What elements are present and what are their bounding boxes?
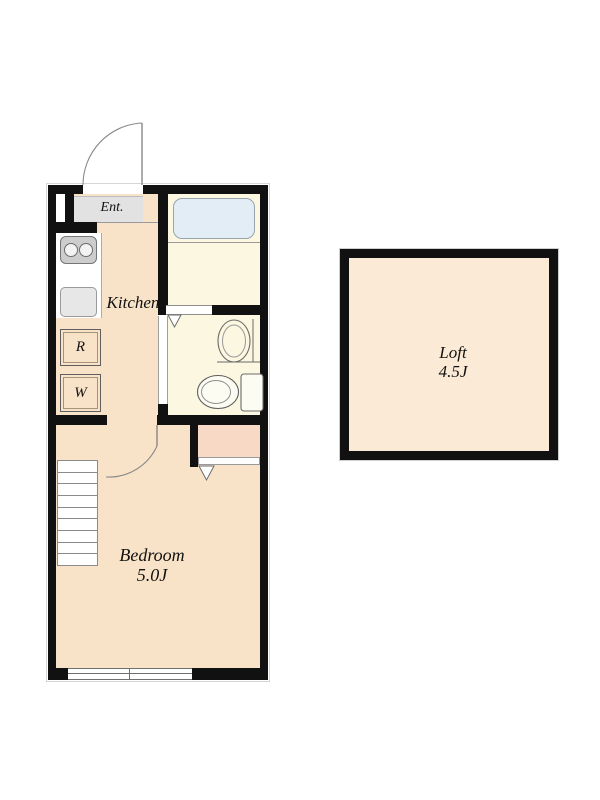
loft-name: Loft bbox=[439, 343, 468, 362]
window-glass-line bbox=[68, 673, 192, 674]
floor-plan: R W Ent. Kitchen bbox=[0, 0, 600, 800]
wall-bath-washroom bbox=[212, 305, 260, 315]
bedroom-label: Bedroom 5.0J bbox=[119, 545, 184, 585]
gas-stove-icon bbox=[60, 236, 97, 264]
loft-size: 4.5J bbox=[439, 362, 468, 381]
bedroom-name: Bedroom bbox=[119, 545, 184, 565]
wall-closet-stub bbox=[190, 415, 198, 467]
stair-step bbox=[57, 553, 98, 566]
burner-icon bbox=[79, 243, 93, 257]
wall-mid-left bbox=[48, 415, 107, 425]
wall-entry-horizontal bbox=[48, 222, 97, 233]
bath-door-opening bbox=[166, 305, 212, 315]
wall-right bbox=[260, 185, 268, 680]
wall-left bbox=[48, 185, 56, 680]
wall-bottom-right bbox=[192, 668, 268, 680]
kitchen-sink-icon bbox=[60, 287, 97, 317]
refrigerator-label: R bbox=[76, 339, 85, 356]
entrance-door-swing-arc bbox=[83, 123, 142, 185]
washer-space: W bbox=[60, 374, 101, 412]
burner-icon bbox=[64, 243, 78, 257]
window bbox=[68, 668, 192, 680]
closet-sill bbox=[198, 457, 260, 465]
bathtub-deck-line bbox=[168, 242, 260, 243]
refrigerator-space: R bbox=[60, 329, 101, 366]
wall-bottom-left bbox=[48, 668, 68, 680]
entrance-step-line bbox=[97, 222, 158, 223]
entry-niche bbox=[56, 194, 65, 222]
loft-label: Loft 4.5J bbox=[439, 343, 468, 381]
window-center-tick bbox=[129, 669, 130, 679]
staircase bbox=[57, 460, 98, 566]
washroom-sliding-door bbox=[158, 316, 168, 404]
bedroom-size: 5.0J bbox=[119, 565, 184, 585]
entrance-label: Ent. bbox=[101, 200, 124, 216]
wall-washroom-stub bbox=[158, 404, 168, 425]
washer-label: W bbox=[74, 385, 87, 402]
kitchen-label: Kitchen bbox=[107, 293, 160, 313]
closet-floor bbox=[198, 425, 260, 457]
bathtub-icon bbox=[173, 198, 255, 239]
wall-mid-right bbox=[157, 415, 268, 425]
